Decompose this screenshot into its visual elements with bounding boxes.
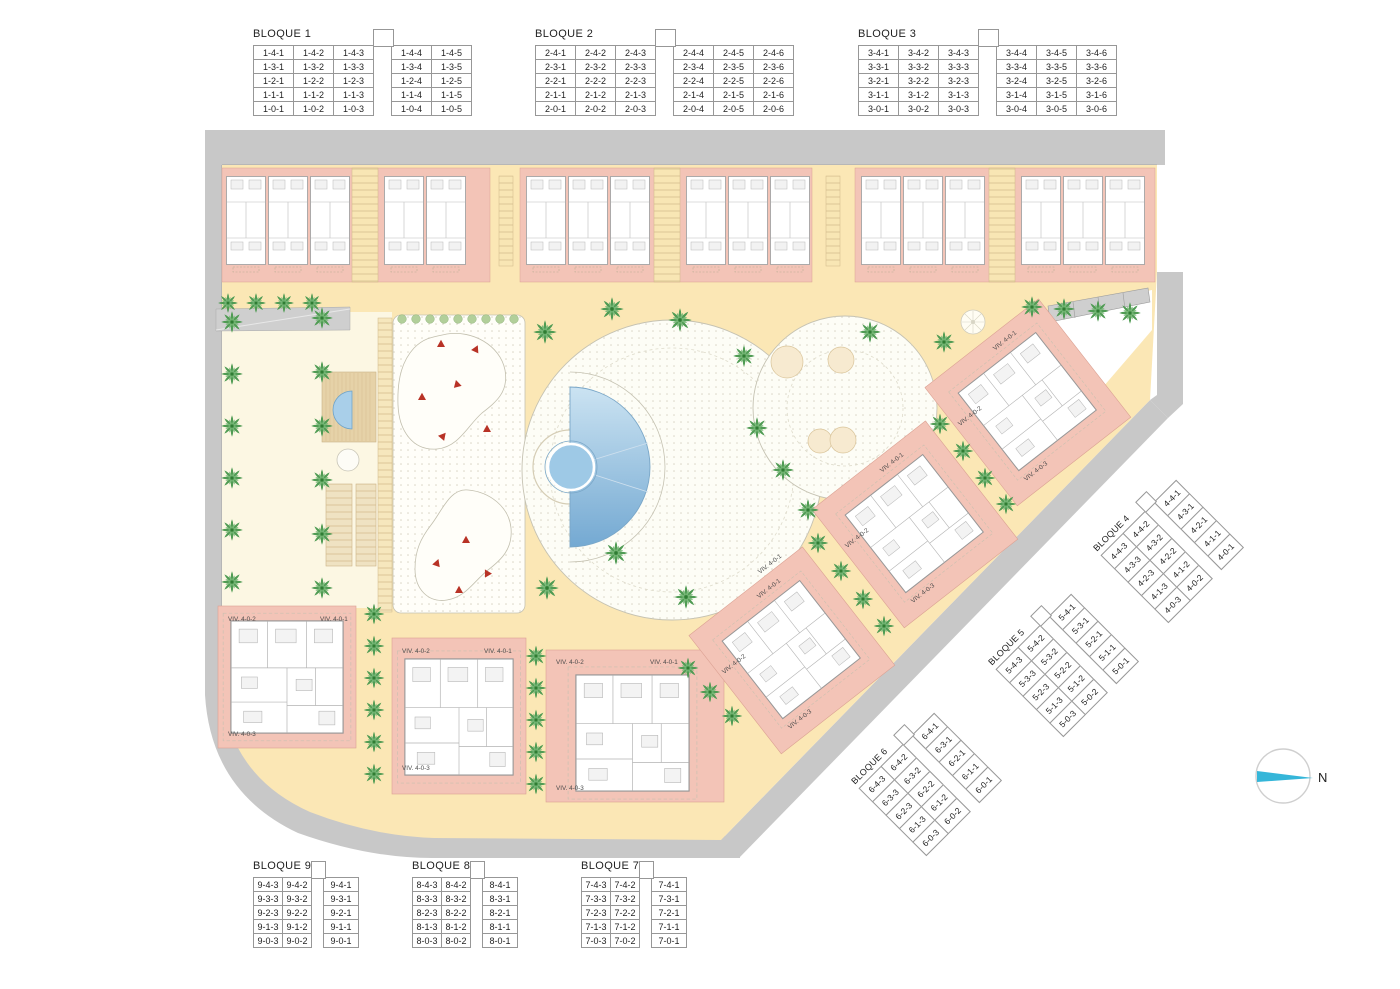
viv-label: VIV. 4-0-2 [228,616,256,623]
unit-cell: 3-1-1 [858,87,899,102]
unit-cell: 3-3-4 [996,59,1037,74]
north-arrow-needle [1257,771,1313,782]
stair-gap [373,101,392,116]
unit-cell: 2-4-1 [535,45,576,60]
unit-cell: 1-4-4 [391,45,432,60]
unit-cell: 2-0-3 [615,101,656,116]
unit-cell: 1-4-5 [431,45,472,60]
bloque-8-building: VIV. 4-0-2 VIV. 4-0-1 VIV. 4-0-3 [392,638,526,794]
unit-cell: 3-2-1 [858,73,899,88]
unit-cell: 3-0-3 [938,101,979,116]
unit-cell: 1-3-3 [333,59,374,74]
unit-cell: 2-3-4 [673,59,714,74]
unit-cell: 3-0-2 [898,101,939,116]
unit-cell: 9-0-1 [323,933,359,948]
stair-gap [655,87,674,102]
unit-cell: 8-1-2 [441,919,471,934]
stair-box [311,861,326,879]
stair-box [373,29,394,47]
unit-cell: 1-3-2 [293,59,334,74]
unit-cell: 2-1-4 [673,87,714,102]
viv-label: VIV. 4-0-3 [402,765,430,772]
viv-label: VIV. 4-0-2 [556,659,584,666]
unit-cell: 1-3-5 [431,59,472,74]
viv-label: VIV. 4-0-2 [402,648,430,655]
unit-cell: 2-1-3 [615,87,656,102]
unit-cell: 3-0-4 [996,101,1037,116]
unit-cell: 8-3-1 [482,891,518,906]
unit-cell: 3-0-1 [858,101,899,116]
bloque-3-table: BLOQUE 33-4-13-4-23-4-33-4-43-4-53-4-63-… [858,28,1117,116]
unit-cell: 7-0-1 [651,933,687,948]
unit-cell: 3-1-4 [996,87,1037,102]
unit-cell: 2-2-5 [713,73,754,88]
unit-cell: 3-3-5 [1036,59,1077,74]
unit-cell: 1-0-5 [431,101,472,116]
unit-cell: 2-2-2 [575,73,616,88]
block-title: BLOQUE 8 [412,860,518,877]
stair-box [639,861,654,879]
bloque-1-table: BLOQUE 11-4-11-4-21-4-31-4-41-4-51-3-11-… [253,28,472,116]
unit-cell: 8-2-1 [482,905,518,920]
unit-cell: 2-2-3 [615,73,656,88]
unit-cell: 1-0-2 [293,101,334,116]
playground [393,315,525,613]
unit-cell: 3-1-5 [1036,87,1077,102]
bloque-7-table: BLOQUE 77-4-37-4-27-4-17-3-37-3-27-3-17-… [581,860,687,948]
unit-cell: 3-1-2 [898,87,939,102]
unit-cell: 7-1-1 [651,919,687,934]
unit-cell: 3-3-1 [858,59,899,74]
stair-gap [373,73,392,88]
unit-cell: 9-2-2 [282,905,312,920]
unit-cell: 1-2-4 [391,73,432,88]
road-top [205,130,1165,165]
unit-cell: 2-4-3 [615,45,656,60]
stair-gap [978,101,997,116]
unit-cell: 3-0-5 [1036,101,1077,116]
unit-cell: 7-2-3 [581,905,611,920]
unit-cell: 1-1-3 [333,87,374,102]
stair-gap [373,87,392,102]
unit-cell: 8-1-1 [482,919,518,934]
unit-cell: 7-1-3 [581,919,611,934]
stair-gap [978,87,997,102]
unit-cell: 2-0-6 [753,101,794,116]
unit-cell: 2-2-6 [753,73,794,88]
stair-gap [655,101,674,116]
bloque-7-building: VIV. 4-0-2 VIV. 4-0-1 VIV. 4-0-3 [546,650,724,802]
stair-gap [655,59,674,74]
stair-gap [373,59,392,74]
unit-cell: 2-1-5 [713,87,754,102]
stair-gap [655,45,674,60]
unit-cell: 7-0-2 [610,933,640,948]
unit-cell: 8-4-2 [441,877,471,892]
unit-cell: 1-2-3 [333,73,374,88]
bloque-8-table: BLOQUE 88-4-38-4-28-4-18-3-38-3-28-3-18-… [412,860,518,948]
unit-cell: 3-4-4 [996,45,1037,60]
unit-cell: 7-2-2 [610,905,640,920]
unit-cell: 3-3-2 [898,59,939,74]
bloque-9-building: VIV. 4-0-2 VIV. 4-0-1 VIV. 4-0-3 [218,606,356,748]
unit-cell: 3-2-2 [898,73,939,88]
unit-cell: 1-4-2 [293,45,334,60]
block-title: BLOQUE 9 [253,860,359,877]
unit-cell: 9-4-1 [323,877,359,892]
fountain-dial [961,310,985,334]
unit-cell: 1-2-2 [293,73,334,88]
garden-circle [337,449,359,471]
stair-gap [978,73,997,88]
viv-label: VIV. 4-0-1 [650,659,678,666]
viv-label: VIV. 4-0-3 [556,785,584,792]
unit-cell: 3-2-3 [938,73,979,88]
block-title: BLOQUE 7 [581,860,687,877]
unit-cell: 7-3-3 [581,891,611,906]
garden [216,307,392,612]
unit-cell: 1-4-1 [253,45,294,60]
unit-cell: 3-3-6 [1076,59,1117,74]
unit-cell: 8-0-1 [482,933,518,948]
unit-cell: 9-0-3 [253,933,283,948]
unit-cell: 1-1-1 [253,87,294,102]
unit-cell: 3-0-6 [1076,101,1117,116]
stair-gap [978,59,997,74]
unit-cell: 2-4-2 [575,45,616,60]
unit-cell: 7-3-1 [651,891,687,906]
unit-cell: 1-0-4 [391,101,432,116]
unit-cell: 7-4-1 [651,877,687,892]
viv-label: VIV. 4-0-3 [228,731,256,738]
unit-cell: 7-4-3 [581,877,611,892]
unit-cell: 8-0-2 [441,933,471,948]
unit-cell: 1-3-1 [253,59,294,74]
unit-cell: 1-4-3 [333,45,374,60]
unit-cell: 9-3-2 [282,891,312,906]
unit-cell: 2-3-2 [575,59,616,74]
unit-cell: 1-1-4 [391,87,432,102]
unit-cell: 2-2-4 [673,73,714,88]
unit-cell: 9-4-2 [282,877,312,892]
unit-cell: 9-1-2 [282,919,312,934]
unit-cell: 1-0-1 [253,101,294,116]
unit-cell: 8-3-3 [412,891,442,906]
unit-cell: 2-1-1 [535,87,576,102]
unit-cell: 2-1-2 [575,87,616,102]
unit-cell: 1-1-2 [293,87,334,102]
stair-box [978,29,999,47]
unit-cell: 9-2-1 [323,905,359,920]
unit-cell: 2-3-1 [535,59,576,74]
bloque-1-2-3-strips [222,168,1155,282]
unit-cell: 9-3-3 [253,891,283,906]
bloque-2-table: BLOQUE 22-4-12-4-22-4-32-4-42-4-52-4-62-… [535,28,794,116]
unit-cell: 8-2-2 [441,905,471,920]
unit-cell: 1-1-5 [431,87,472,102]
stair-box [470,861,485,879]
viv-label: VIV. 4-0-1 [320,616,348,623]
unit-cell: 8-1-3 [412,919,442,934]
unit-cell: 3-1-6 [1076,87,1117,102]
unit-cell: 1-0-3 [333,101,374,116]
unit-cell: 1-3-4 [391,59,432,74]
unit-cell: 8-0-3 [412,933,442,948]
stair-gap [655,73,674,88]
north-label: N [1318,770,1327,785]
unit-cell: 3-2-5 [1036,73,1077,88]
stair-gap [978,45,997,60]
unit-cell: 3-1-3 [938,87,979,102]
viv-label: VIV. 4-0-1 [484,648,512,655]
block-title: BLOQUE 1 [253,28,472,45]
stair-box [655,29,676,47]
unit-cell: 3-4-3 [938,45,979,60]
pergola [326,484,376,566]
unit-cell: 3-4-6 [1076,45,1117,60]
unit-cell: 3-2-6 [1076,73,1117,88]
unit-cell: 2-0-1 [535,101,576,116]
unit-cell: 7-0-3 [581,933,611,948]
unit-cell: 9-1-3 [253,919,283,934]
unit-cell: 2-4-6 [753,45,794,60]
unit-cell: 3-4-2 [898,45,939,60]
unit-cell: 9-1-1 [323,919,359,934]
unit-cell: 7-4-2 [610,877,640,892]
stair-gap [373,45,392,60]
unit-cell: 9-4-3 [253,877,283,892]
unit-cell: 3-4-5 [1036,45,1077,60]
unit-cell: 2-3-3 [615,59,656,74]
unit-cell: 7-2-1 [651,905,687,920]
north-arrow: N [1256,749,1327,803]
bloque-9-table: BLOQUE 99-4-39-4-29-4-19-3-39-3-29-3-19-… [253,860,359,948]
unit-cell: 2-0-4 [673,101,714,116]
unit-cell: 2-4-5 [713,45,754,60]
unit-cell: 7-1-2 [610,919,640,934]
round-pool [548,444,594,490]
unit-cell: 2-0-5 [713,101,754,116]
unit-cell: 2-0-2 [575,101,616,116]
unit-cell: 9-2-3 [253,905,283,920]
unit-cell: 2-4-4 [673,45,714,60]
hedge-row [398,315,519,324]
unit-cell: 2-1-6 [753,87,794,102]
unit-cell: 8-2-3 [412,905,442,920]
unit-cell: 8-4-1 [482,877,518,892]
unit-cell: 1-2-5 [431,73,472,88]
unit-cell: 2-3-5 [713,59,754,74]
unit-cell: 8-4-3 [412,877,442,892]
unit-cell: 8-3-2 [441,891,471,906]
unit-cell: 9-0-2 [282,933,312,948]
unit-cell: 2-3-6 [753,59,794,74]
unit-cell: 3-2-4 [996,73,1037,88]
unit-cell: 3-3-3 [938,59,979,74]
unit-cell: 2-2-1 [535,73,576,88]
unit-cell: 9-3-1 [323,891,359,906]
unit-cell: 7-3-2 [610,891,640,906]
unit-cell: 3-4-1 [858,45,899,60]
unit-cell: 1-2-1 [253,73,294,88]
